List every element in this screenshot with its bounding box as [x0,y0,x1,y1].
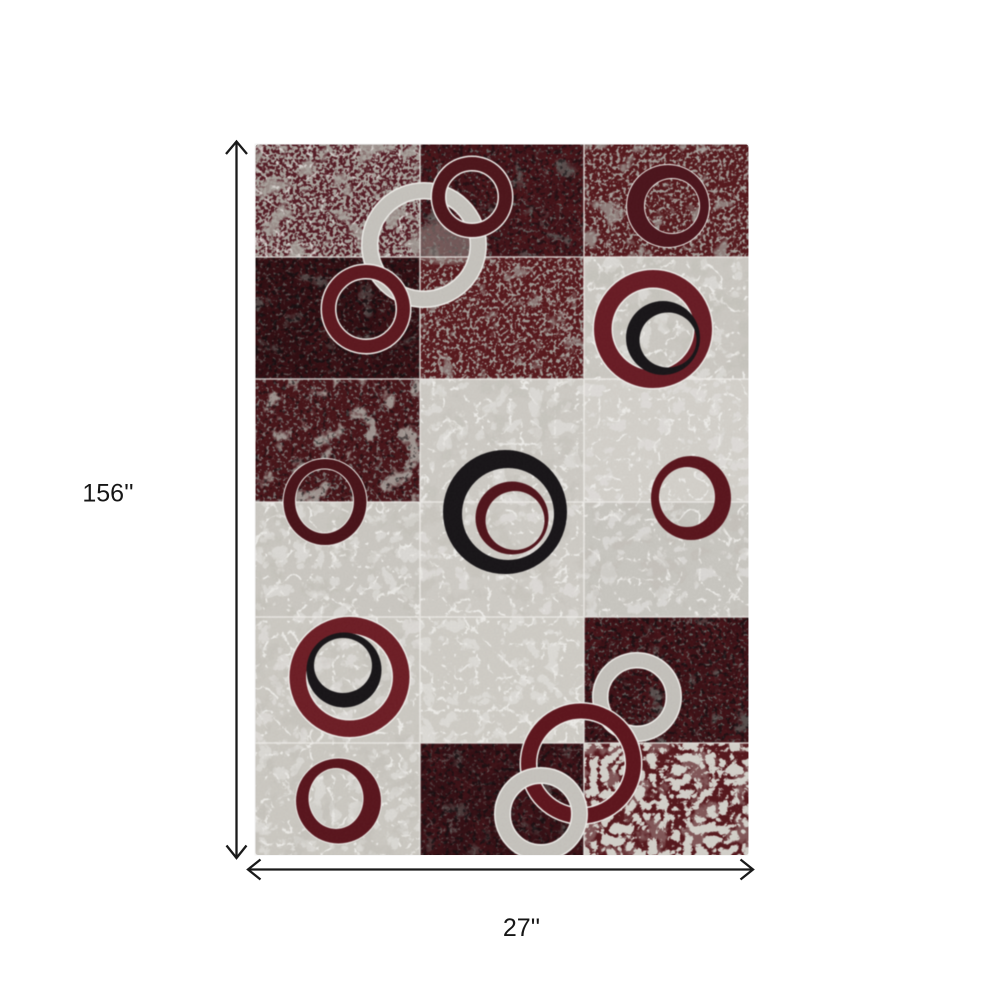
svg-text:27'': 27'' [503,914,540,942]
svg-text:156'': 156'' [82,480,133,508]
